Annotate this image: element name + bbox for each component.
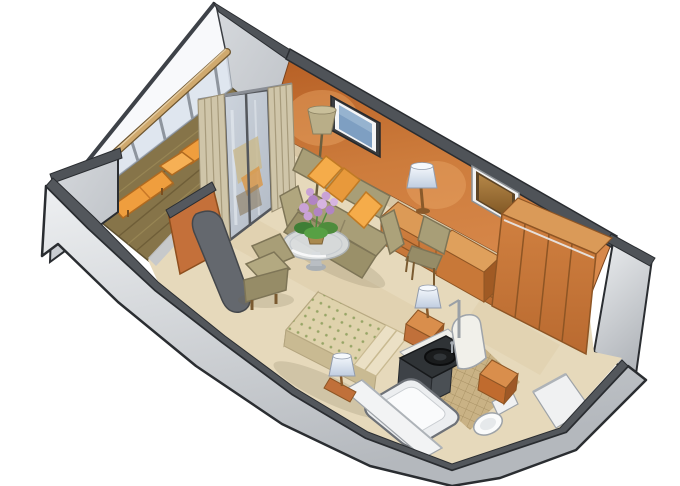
stateroom-floorplan-illustration [0, 0, 680, 486]
rounded-partition [452, 315, 486, 369]
